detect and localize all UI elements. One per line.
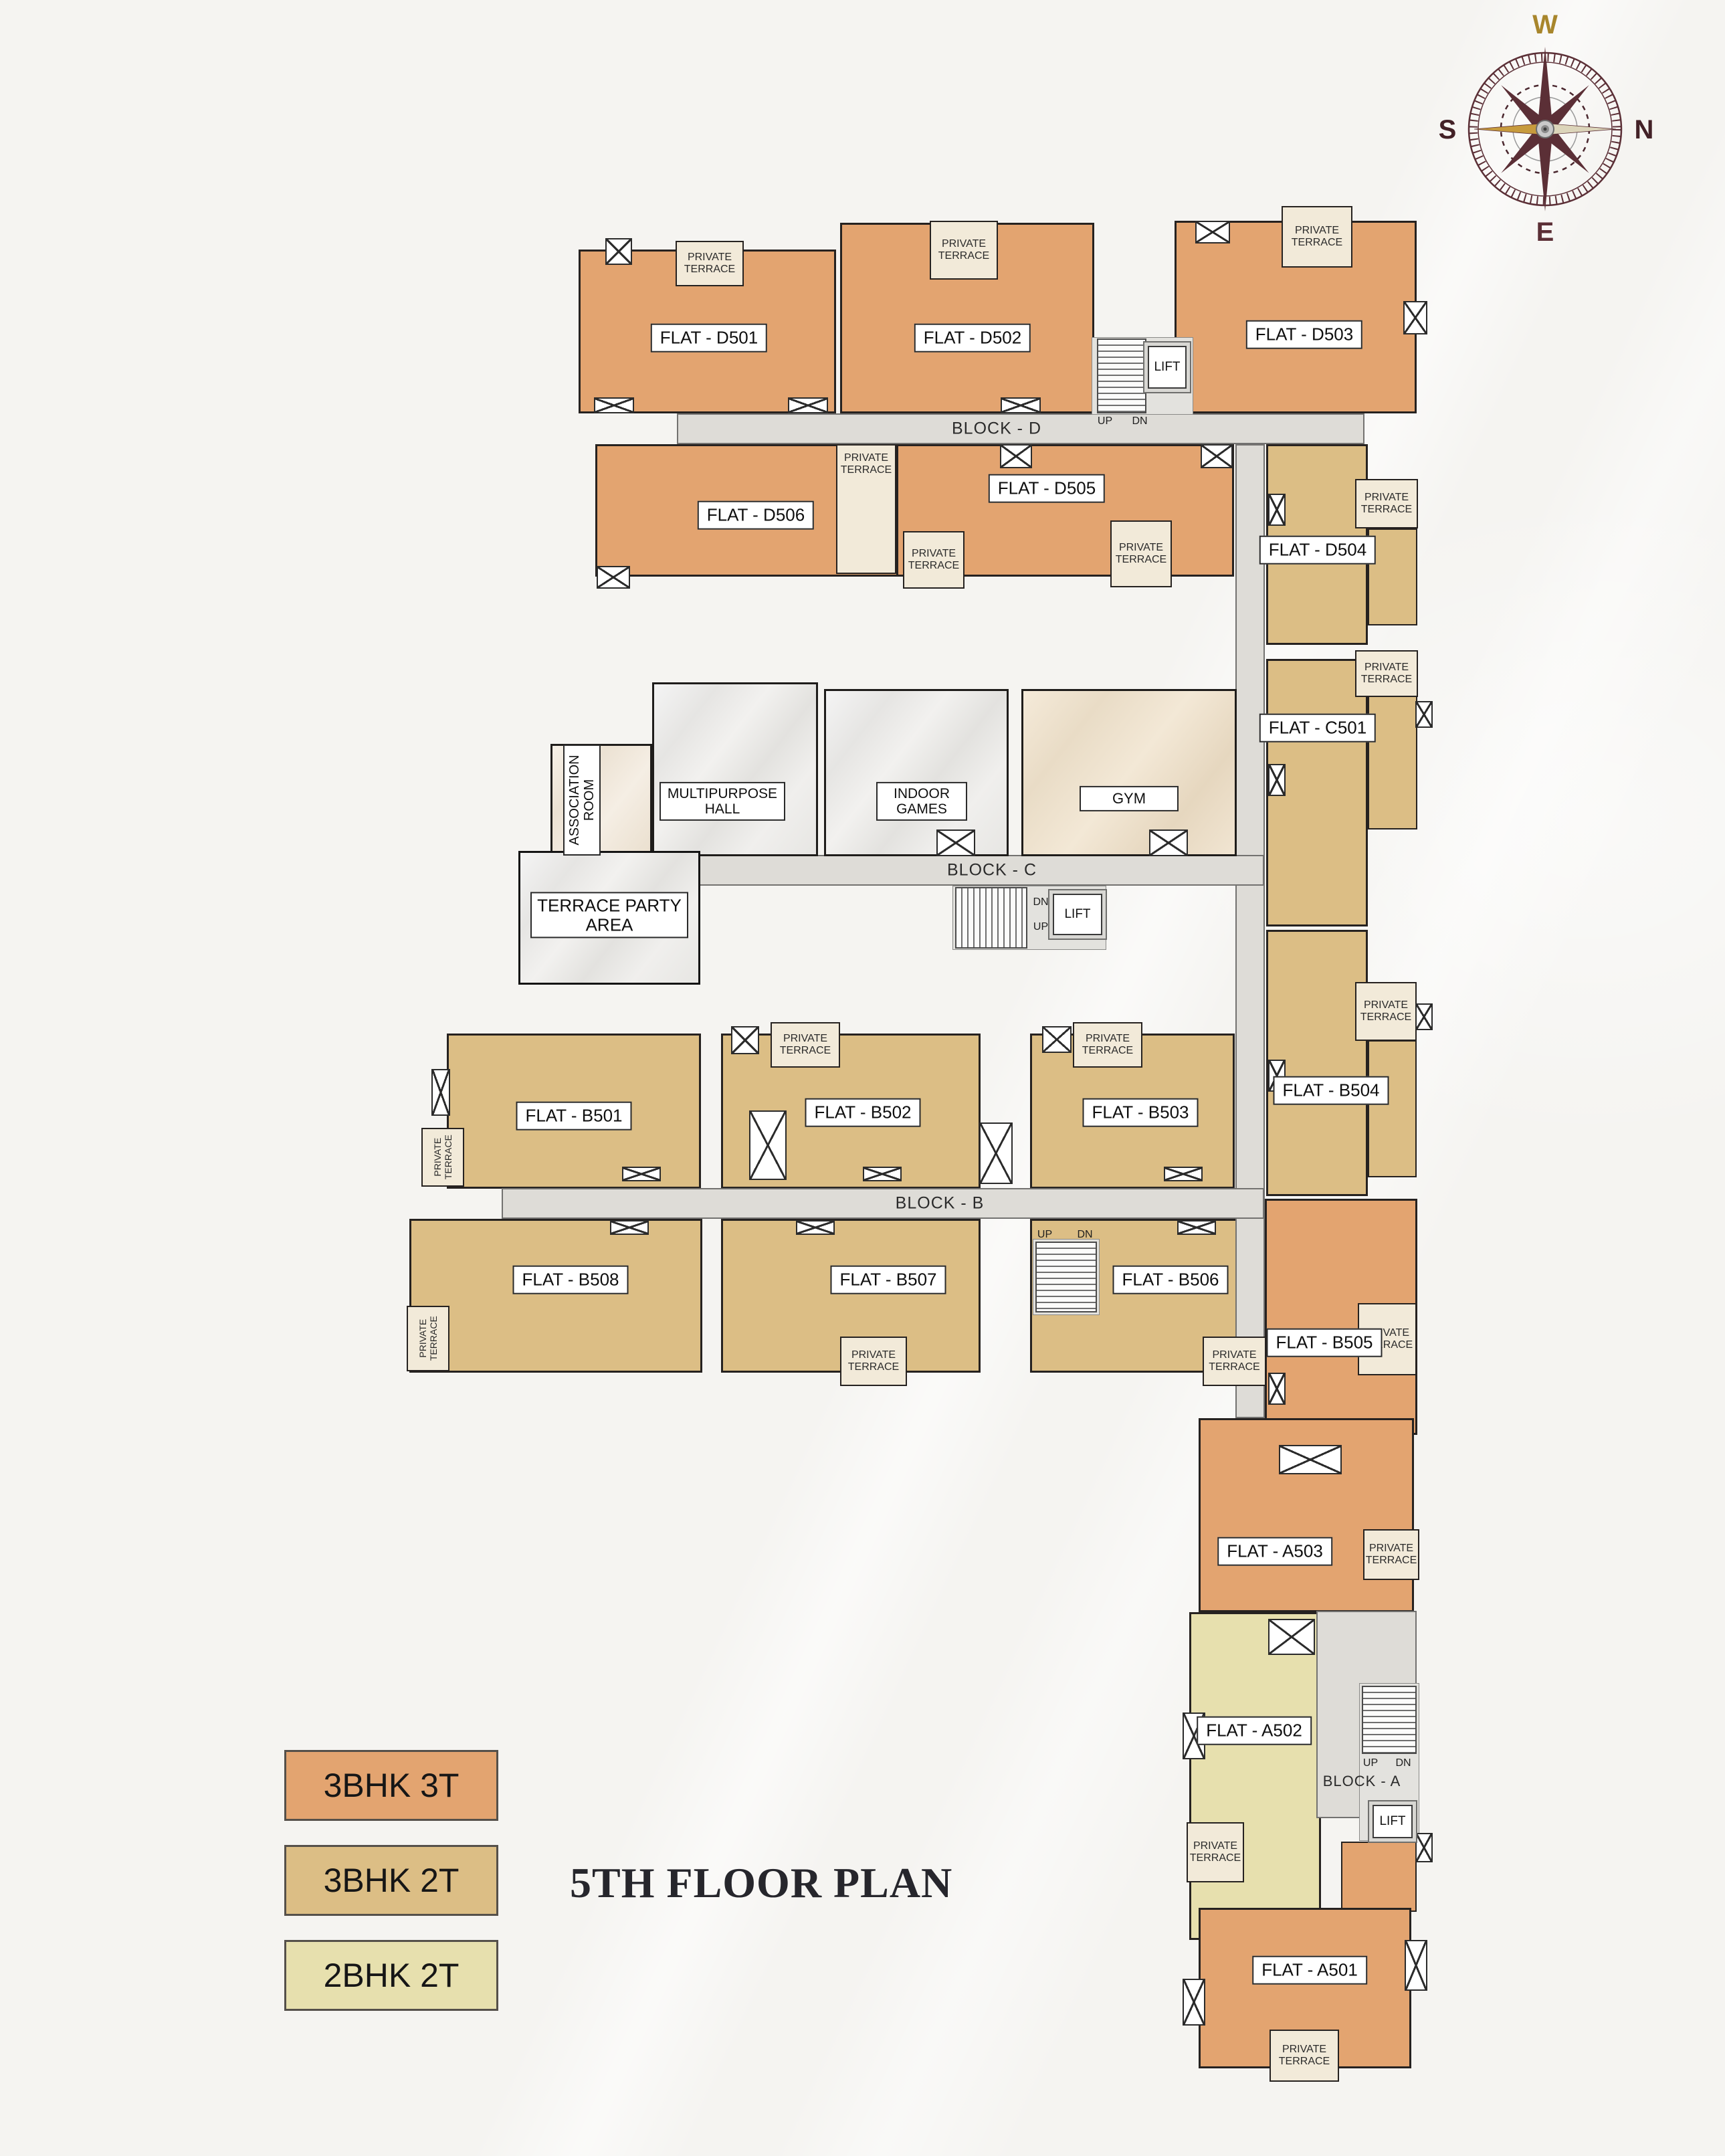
multipurpose-hall — [652, 682, 818, 856]
flat-b505-label: FLAT - B505 — [1267, 1329, 1383, 1357]
window-icon — [1403, 301, 1427, 334]
flat-b501-label: FLAT - B501 — [516, 1102, 632, 1131]
window-icon — [622, 1167, 661, 1181]
private-terrace-d506: PRIVATE TERRACE — [836, 444, 896, 574]
corridor-block-b — [502, 1188, 1264, 1219]
flat-b507-label: FLAT - B507 — [831, 1266, 946, 1294]
flat-a501-upper-arm — [1341, 1842, 1417, 1912]
flat-b508-label: FLAT - B508 — [513, 1266, 629, 1294]
private-terrace-d505-right: PRIVATE TERRACE — [1110, 520, 1172, 587]
private-terrace-d504: PRIVATE TERRACE — [1355, 479, 1418, 528]
dn-label: DN — [1132, 415, 1147, 427]
flat-b503-label: FLAT - B503 — [1083, 1098, 1199, 1127]
flat-d506-label: FLAT - D506 — [698, 501, 814, 530]
staircase-block-b — [1035, 1242, 1097, 1312]
association-room-label: ASSOCIATION ROOM — [563, 745, 601, 856]
private-terrace-d505-left: PRIVATE TERRACE — [903, 531, 965, 589]
window-icon — [1415, 1833, 1433, 1862]
window-icon — [788, 397, 828, 413]
window-icon — [796, 1220, 835, 1235]
window-icon — [1268, 1373, 1286, 1405]
compass-icon: W N S E — [1431, 5, 1659, 246]
private-terrace-a501: PRIVATE TERRACE — [1270, 2030, 1339, 2082]
window-icon — [1042, 1026, 1072, 1053]
window-icon — [1201, 444, 1233, 468]
indoor-games-label: INDOOR GAMES — [876, 782, 967, 821]
window-icon — [979, 1122, 1013, 1184]
window-icon — [1405, 1940, 1427, 1991]
private-terrace-b502: PRIVATE TERRACE — [771, 1022, 840, 1068]
indoor-games-room — [824, 689, 1009, 856]
staircase-block-c — [955, 887, 1027, 949]
terrace-party-area-label: TERRACE PARTY AREA — [530, 892, 688, 938]
flat-d504-label: FLAT - D504 — [1259, 536, 1376, 565]
window-icon — [597, 566, 630, 589]
flat-b502-label: FLAT - B502 — [805, 1098, 921, 1127]
window-icon — [594, 397, 634, 413]
legend-label-3bhk2t: 3BHK 2T — [324, 1861, 460, 1900]
page-title: 5TH FLOOR PLAN — [570, 1858, 958, 1908]
legend-swatch-3bhk2t: 3BHK 2T — [284, 1845, 498, 1916]
up-label: UP — [1098, 415, 1112, 427]
private-terrace-b508-left: PRIVATE TERRACE — [407, 1306, 449, 1371]
private-terrace-a502: PRIVATE TERRACE — [1187, 1822, 1244, 1882]
gym-room — [1021, 689, 1237, 856]
window-icon — [1164, 1167, 1203, 1181]
compass-w: W — [1532, 10, 1558, 39]
window-icon — [1415, 1003, 1433, 1030]
private-terrace-b507: PRIVATE TERRACE — [840, 1337, 907, 1386]
private-terrace-a503: PRIVATE TERRACE — [1363, 1529, 1419, 1580]
private-terrace-c501: PRIVATE TERRACE — [1355, 650, 1418, 697]
window-icon — [1001, 397, 1041, 413]
window-icon — [1279, 1445, 1342, 1474]
flat-d502-label: FLAT - D502 — [914, 324, 1031, 353]
legend-label-3bhk3t: 3BHK 3T — [324, 1766, 460, 1805]
compass-s: S — [1439, 115, 1457, 144]
dn-label: DN — [1395, 1757, 1411, 1769]
block-a-label: BLOCK - A — [1323, 1773, 1401, 1790]
flat-d503-label: FLAT - D503 — [1246, 320, 1362, 349]
window-icon — [1195, 221, 1230, 243]
window-icon — [936, 829, 975, 856]
private-terrace-b506: PRIVATE TERRACE — [1203, 1337, 1266, 1386]
flat-c501-label: FLAT - C501 — [1259, 714, 1376, 743]
window-icon — [731, 1026, 759, 1054]
window-icon — [1149, 829, 1188, 856]
private-terrace-b503: PRIVATE TERRACE — [1073, 1022, 1142, 1068]
window-icon — [1183, 1979, 1205, 2026]
compass-e: E — [1536, 217, 1554, 246]
flat-a501-label: FLAT - A501 — [1252, 1956, 1367, 1985]
gym-label: GYM — [1080, 786, 1179, 811]
legend-swatch-3bhk3t: 3BHK 3T — [284, 1750, 498, 1821]
dn-label: DN — [1077, 1229, 1092, 1241]
window-icon — [1268, 1619, 1315, 1655]
up-label: UP — [1363, 1757, 1378, 1769]
staircase-block-d — [1097, 338, 1146, 413]
window-icon — [1177, 1220, 1216, 1235]
flat-d501-label: FLAT - D501 — [651, 324, 767, 353]
corridor-block-c — [602, 855, 1264, 886]
flat-a502-label: FLAT - A502 — [1197, 1717, 1312, 1745]
private-terrace-b504: PRIVATE TERRACE — [1355, 982, 1417, 1041]
window-icon — [1268, 494, 1286, 526]
private-terrace-d501: PRIVATE TERRACE — [676, 241, 744, 286]
lift-block-c: LIFT — [1053, 894, 1102, 935]
compass-n: N — [1635, 115, 1654, 144]
window-icon — [610, 1220, 649, 1235]
block-b-label: BLOCK - B — [896, 1194, 985, 1213]
up-label: UP — [1033, 921, 1048, 933]
legend-label-2bhk2t: 2BHK 2T — [324, 1956, 460, 1995]
flat-a503-label: FLAT - A503 — [1217, 1537, 1332, 1566]
lift-block-a: LIFT — [1373, 1805, 1413, 1838]
flat-b504-extension — [1368, 1040, 1417, 1177]
legend-swatch-2bhk2t: 2BHK 2T — [284, 1940, 498, 2011]
flat-d505-label: FLAT - D505 — [989, 474, 1105, 503]
flat-a502 — [1189, 1612, 1321, 1940]
window-icon — [1415, 701, 1433, 728]
flat-b508 — [409, 1219, 702, 1373]
dn-label: DN — [1033, 896, 1048, 908]
window-icon — [431, 1069, 450, 1116]
flat-b506-label: FLAT - B506 — [1113, 1266, 1229, 1294]
floor-plan-canvas: PRIVATE TERRACE PRIVATE TERRACE PRIVATE … — [0, 0, 1725, 2156]
up-label: UP — [1037, 1229, 1052, 1241]
block-d-label: BLOCK - D — [952, 419, 1041, 439]
window-icon — [605, 238, 632, 265]
private-terrace-d502: PRIVATE TERRACE — [930, 221, 998, 280]
multipurpose-hall-label: MULTIPURPOSE HALL — [659, 782, 785, 821]
window-icon — [749, 1110, 787, 1180]
staircase-block-a — [1362, 1686, 1417, 1754]
window-icon — [1000, 444, 1032, 468]
window-icon — [1268, 764, 1286, 796]
private-terrace-d503: PRIVATE TERRACE — [1282, 206, 1352, 268]
flat-b504-label: FLAT - B504 — [1274, 1076, 1389, 1105]
block-c-label: BLOCK - C — [947, 861, 1037, 880]
corridor-vertical-right — [1235, 444, 1265, 1418]
private-terrace-b501-left: PRIVATE TERRACE — [421, 1128, 464, 1187]
lift-block-d: LIFT — [1148, 346, 1187, 389]
window-icon — [863, 1167, 902, 1181]
